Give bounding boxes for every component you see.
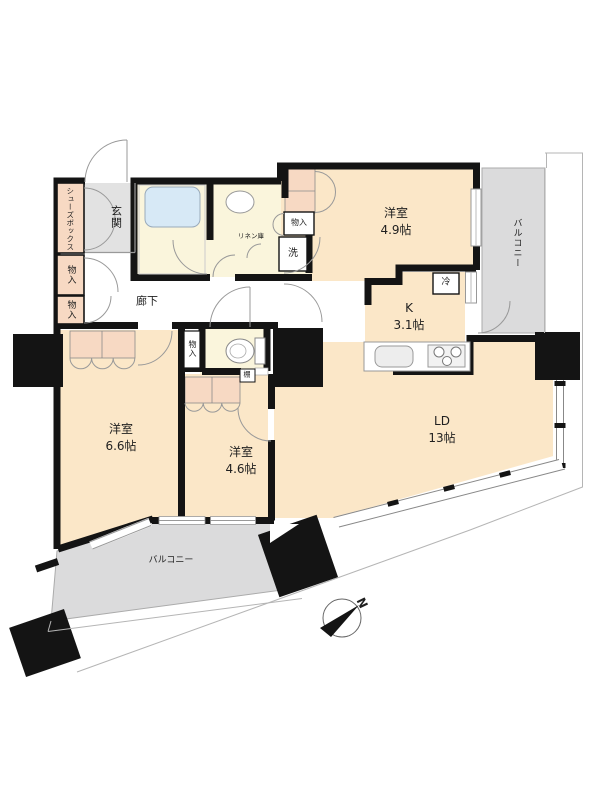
room46-name: 洋室 bbox=[229, 446, 253, 458]
floor-plan-drawing bbox=[0, 0, 601, 800]
pillar-bottom-left bbox=[9, 609, 81, 677]
kitchen-size: 3.1帖 bbox=[393, 319, 424, 331]
storage-left-2-label: 物入 bbox=[66, 300, 75, 320]
ld-size: 13帖 bbox=[428, 432, 455, 444]
storage-hall-label: 物入 bbox=[188, 340, 196, 358]
corridor-label: 廊下 bbox=[136, 296, 158, 307]
room49-name: 洋室 bbox=[384, 207, 408, 219]
room46-size: 4.6帖 bbox=[225, 463, 256, 475]
floor-plan: シューズボックス 玄関 物入 物入 廊下 リネン庫 洗 物入 洋室 4.9帖 冷… bbox=[0, 0, 601, 800]
linen-label: リネン庫 bbox=[238, 233, 264, 240]
burner bbox=[434, 347, 444, 357]
storage-left-1-label: 物入 bbox=[66, 265, 75, 285]
balcony-bottom-label: バルコニー bbox=[149, 557, 194, 566]
burner bbox=[443, 357, 452, 366]
ld-name: LD bbox=[434, 415, 450, 427]
kitchen-name: K bbox=[405, 302, 413, 314]
shelf-label: 棚 bbox=[244, 372, 251, 379]
pillar-top-right bbox=[535, 332, 580, 380]
washer-label: 洗 bbox=[288, 249, 298, 259]
genkan-label: 玄関 bbox=[111, 205, 122, 229]
bathtub bbox=[145, 187, 200, 227]
room66-name: 洋室 bbox=[109, 423, 133, 435]
burner bbox=[451, 347, 461, 357]
room66-closet bbox=[70, 331, 135, 358]
balcony-right-label: バルコニー bbox=[512, 218, 521, 268]
storage-washroom-label: 物入 bbox=[291, 219, 307, 227]
wash-basin bbox=[226, 191, 254, 213]
shoes-box-label: シューズボックス bbox=[66, 187, 74, 251]
kitchen-sink bbox=[375, 346, 413, 367]
toilet-tank bbox=[255, 338, 265, 364]
room46-closet bbox=[185, 377, 240, 403]
room66-size: 6.6帖 bbox=[105, 440, 136, 452]
fridge-label: 冷 bbox=[441, 279, 450, 288]
pillar-center bbox=[273, 328, 323, 387]
room49-size: 4.9帖 bbox=[380, 224, 411, 236]
entrance-door-arc bbox=[85, 140, 127, 182]
pillar-left bbox=[13, 334, 63, 387]
